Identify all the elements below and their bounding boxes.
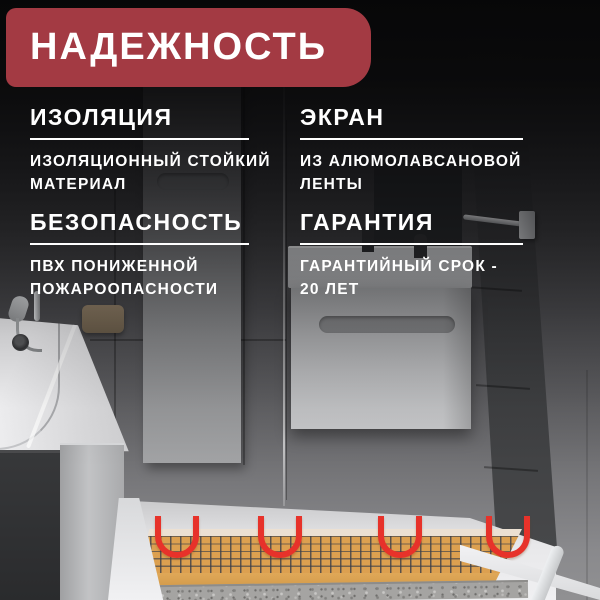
title-banner: НАДЕЖНОСТЬ xyxy=(6,8,371,87)
vanity-side-shadow xyxy=(443,288,471,429)
promo-image: НАДЕЖНОСТЬ ИЗОЛЯЦИЯ ИЗОЛЯЦИОННЫЙ СТОЙКИЙ… xyxy=(0,0,600,600)
feature-screen: ЭКРАН ИЗ АЛЮМОЛАВСАНОВОЙ ЛЕНТЫ xyxy=(300,104,562,196)
feature-warranty: ГАРАНТИЯ ГАРАНТИЙНЫЙ СРОК - 20 ЛЕТ xyxy=(300,209,562,301)
feature-description: ПВХ ПОНИЖЕННОЙ ПОЖАРООПАСНОСТИ xyxy=(30,256,292,301)
feature-description-line: 20 ЛЕТ xyxy=(300,279,562,302)
bathtub-apron-tile xyxy=(0,450,62,600)
heating-cable-loop xyxy=(378,516,422,558)
feature-description: ИЗОЛЯЦИОННЫЙ СТОЙКИЙ МАТЕРИАЛ xyxy=(30,151,292,196)
soap-shelf xyxy=(82,305,124,333)
feature-title: ИЗОЛЯЦИЯ xyxy=(30,104,292,130)
feature-description-line: ИЗОЛЯЦИОННЫЙ СТОЙКИЙ xyxy=(30,151,292,174)
door-panel-seam xyxy=(586,370,588,600)
feature-safety: БЕЗОПАСНОСТЬ ПВХ ПОНИЖЕННОЙ ПОЖАРООПАСНО… xyxy=(30,209,292,301)
feature-title: ГАРАНТИЯ xyxy=(300,209,562,235)
feature-description: ИЗ АЛЮМОЛАВСАНОВОЙ ЛЕНТЫ xyxy=(300,151,562,196)
feature-description-line: ПВХ ПОНИЖЕННОЙ xyxy=(30,256,292,279)
feature-underline xyxy=(30,138,249,140)
feature-description-line: ЛЕНТЫ xyxy=(300,174,562,197)
bathtub-drain xyxy=(12,334,29,351)
feature-description-line: ГАРАНТИЙНЫЙ СРОК - xyxy=(300,256,562,279)
feature-title: БЕЗОПАСНОСТЬ xyxy=(30,209,292,235)
feature-description-line: ПОЖАРООПАСНОСТИ xyxy=(30,279,292,302)
vanity-handle-recess xyxy=(319,316,455,333)
feature-underline xyxy=(300,138,523,140)
feature-underline xyxy=(30,243,249,245)
heating-cable-loop xyxy=(486,516,530,558)
feature-title: ЭКРАН xyxy=(300,104,562,130)
feature-description: ГАРАНТИЙНЫЙ СРОК - 20 ЛЕТ xyxy=(300,256,562,301)
vanity-cabinet xyxy=(291,288,471,429)
feature-description-line: МАТЕРИАЛ xyxy=(30,174,292,197)
feature-insulation: ИЗОЛЯЦИЯ ИЗОЛЯЦИОННЫЙ СТОЙКИЙ МАТЕРИАЛ xyxy=(30,104,292,196)
heating-cable-loop xyxy=(258,516,302,558)
banner-title: НАДЕЖНОСТЬ xyxy=(30,26,327,69)
feature-description-line: ИЗ АЛЮМОЛАВСАНОВОЙ xyxy=(300,151,562,174)
heating-cable-loop xyxy=(155,516,199,558)
feature-underline xyxy=(300,243,523,245)
